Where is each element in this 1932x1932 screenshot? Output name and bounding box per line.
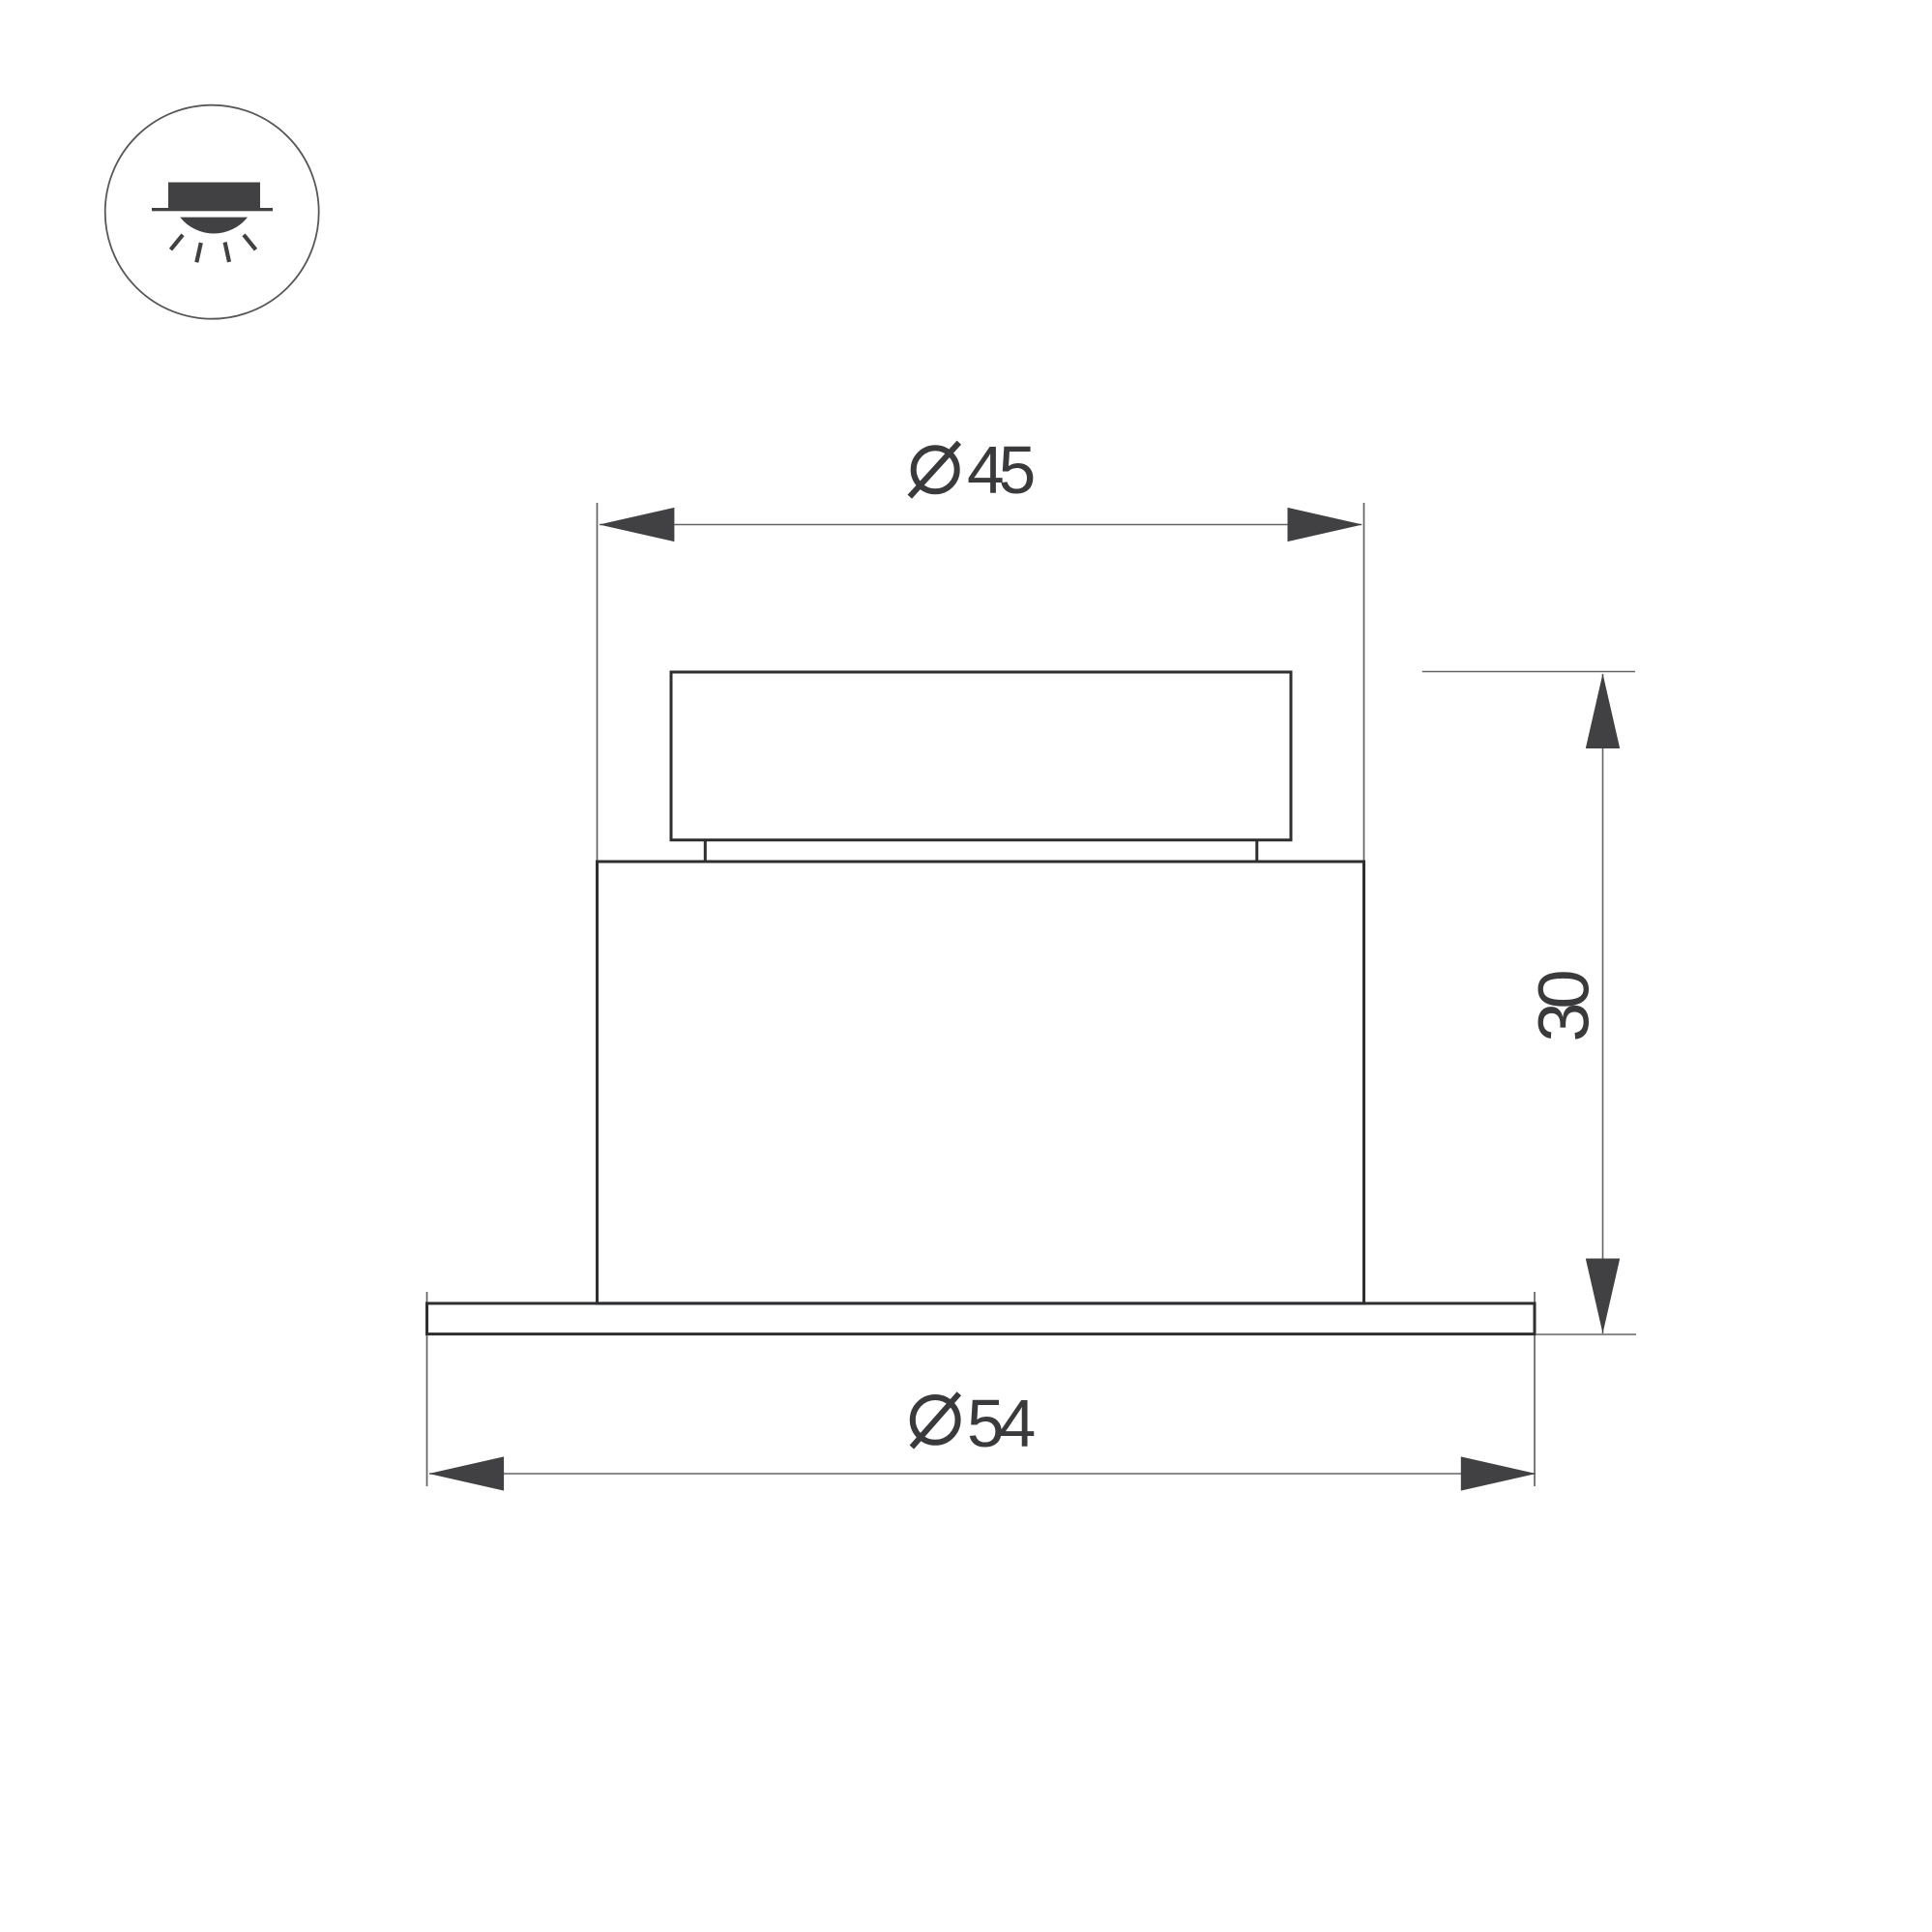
svg-text:30: 30: [1524, 972, 1604, 1042]
svg-text:54: 54: [967, 1386, 1035, 1461]
svg-text:45: 45: [967, 432, 1034, 508]
